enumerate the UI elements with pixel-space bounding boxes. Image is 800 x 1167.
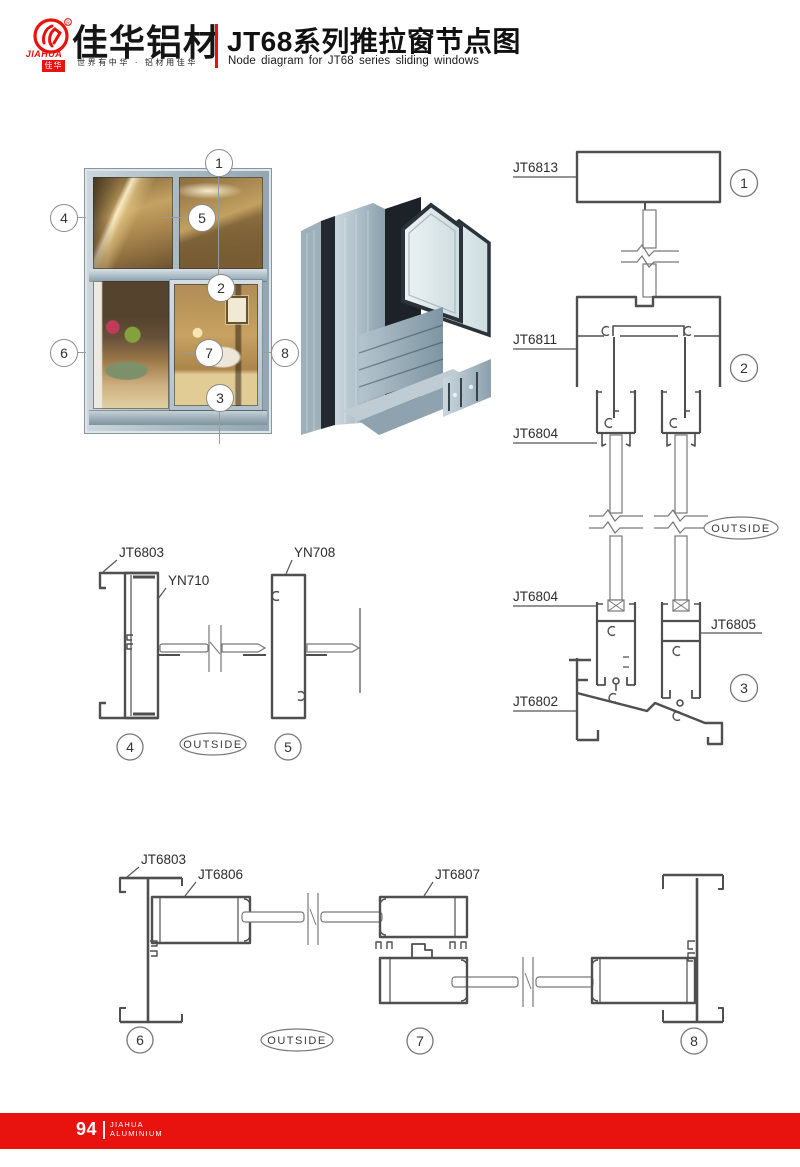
- label-jt6802: JT6802: [513, 694, 558, 709]
- page-title: JT68系列推拉窗节点图: [227, 20, 521, 60]
- glass-units-mid: [158, 608, 360, 693]
- mullion-section-callouts: 4 5 OUTSIDE: [117, 733, 301, 760]
- catalog-page: R JIAHUA 佳华 佳华铝材 世界有中华 · 铝材用佳华 JT68系列推拉窗…: [0, 0, 800, 1167]
- horizontal-section-labels: JT6803 JT6806 JT6807: [127, 852, 480, 896]
- diagram-callout-6: 6: [136, 1032, 144, 1048]
- svg-text:R: R: [66, 20, 70, 26]
- callout-line-5: [163, 217, 189, 218]
- glass-units-bottom: [242, 893, 593, 1007]
- bottom-track-rail: [89, 411, 267, 425]
- horizontal-section-callouts: 6 7 8 OUTSIDE: [127, 1027, 707, 1054]
- diagram-callout-4: 4: [126, 739, 134, 755]
- photo-callout-6: 6: [50, 339, 78, 367]
- vertical-section-diagram: JT6813 JT6811 JT6804 JT6804 JT6805 JT680…: [508, 140, 800, 768]
- label-jt6803-mid: JT6803: [119, 545, 164, 560]
- lower-pane-left: [93, 281, 169, 409]
- outside-label: OUTSIDE: [183, 739, 242, 751]
- jt6804-jt6805-bottom-rails-drawing: [597, 602, 700, 698]
- jt6803-yn710-drawing: [100, 573, 158, 718]
- diagram-callout-7: 7: [416, 1033, 424, 1049]
- diagram-callout-1: 1: [740, 175, 748, 191]
- outside-label: OUTSIDE: [267, 1035, 326, 1047]
- page-number: 94: [76, 1119, 97, 1140]
- label-jt6807: JT6807: [435, 867, 480, 882]
- mullion-section-diagram: JT6803 YN710 YN708 4 5 OUTSIDE: [75, 540, 405, 765]
- photo-callout-5: 5: [188, 204, 216, 232]
- footer-brand-line2: ALUMINIUM: [110, 1129, 163, 1138]
- callout-line-3: [219, 410, 220, 444]
- brand-slogan: 世界有中华 · 铝材用佳华: [77, 57, 198, 68]
- outside-label: OUTSIDE: [711, 523, 770, 535]
- footer-divider: [103, 1121, 105, 1139]
- photo-callout-8: 8: [271, 339, 299, 367]
- label-jt6811: JT6811: [513, 332, 557, 347]
- callout-line-1: [218, 175, 219, 276]
- jt6806-drawing: [152, 897, 250, 943]
- vertical-section-labels: JT6813 JT6811 JT6804 JT6804 JT6805 JT680…: [513, 160, 762, 711]
- label-jt6804-bottom: JT6804: [513, 589, 559, 604]
- diagram-callout-5: 5: [284, 739, 292, 755]
- diagram-callout-8: 8: [690, 1033, 698, 1049]
- glass-unit: [621, 210, 679, 297]
- photo-callout-7: 7: [195, 339, 223, 367]
- outside-badge-right: OUTSIDE: [704, 517, 778, 539]
- header-divider: [215, 24, 218, 68]
- yn708-drawing: [272, 575, 305, 718]
- logo-seal: 佳华: [42, 60, 65, 72]
- horizontal-section-diagram: JT6803 JT6806 JT6807 6 7 8 OUTSIDE: [100, 845, 740, 1060]
- picture-frame-decor: [226, 296, 248, 324]
- label-jt6806: JT6806: [198, 867, 243, 882]
- right-sash-stile-drawing: [592, 958, 695, 1003]
- sash-glass-units: [589, 435, 708, 611]
- transom-pane-left: [93, 177, 173, 269]
- photo-callout-3: 3: [206, 384, 234, 412]
- photo-callout-1: 1: [205, 149, 233, 177]
- label-jt6803-bottom: JT6803: [141, 852, 186, 867]
- photo-callout-4: 4: [50, 204, 78, 232]
- window-photo: [84, 168, 272, 434]
- label-jt6804-top: JT6804: [513, 426, 559, 441]
- profile-3d-render: [293, 183, 498, 438]
- logo-name-en: JIAHUA: [21, 49, 67, 59]
- diagram-callout-3: 3: [740, 680, 748, 696]
- label-yn708: YN708: [294, 545, 335, 560]
- jt6811-profile-drawing: [577, 297, 720, 418]
- photo-callout-2: 2: [207, 274, 235, 302]
- label-yn710: YN710: [168, 573, 209, 588]
- footer-brand-line1: JIAHUA: [110, 1120, 144, 1129]
- label-jt6805: JT6805: [711, 617, 756, 632]
- right-jamb-drawing: [663, 875, 723, 1022]
- glazing-gaskets: [608, 600, 689, 611]
- diagram-callout-2: 2: [740, 360, 748, 376]
- label-jt6813: JT6813: [513, 160, 558, 175]
- page-subtitle: Node diagram for JT68 series sliding win…: [228, 55, 479, 67]
